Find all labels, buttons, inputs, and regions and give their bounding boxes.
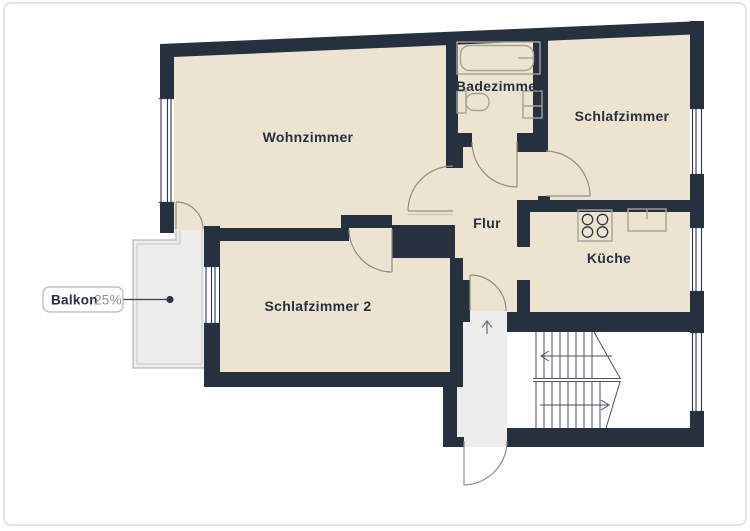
- wall-bad-south-w: [446, 133, 472, 147]
- wall-stair-west: [443, 387, 457, 447]
- room-label-badezimmer: Badezimmer: [456, 78, 543, 94]
- wall-kueche-west-upper: [517, 212, 530, 247]
- wall-sz2-top: [204, 228, 349, 241]
- room-label-flur: Flur: [473, 215, 501, 231]
- window-schlafzimmer-east: [690, 108, 704, 175]
- callout-title: Balkon: [51, 293, 98, 308]
- room-label-schlafzimmer2: Schlafzimmer 2: [265, 298, 372, 314]
- stair-landing: [457, 311, 507, 447]
- wall-bottom: [507, 428, 704, 447]
- wall-bottom-west-bit: [455, 437, 464, 447]
- window-kueche-east: [690, 227, 704, 292]
- callout-dot: [166, 296, 173, 303]
- wall-sz2-bottom: [204, 372, 463, 387]
- callout-value: 25%: [94, 293, 122, 308]
- room-label-kueche: Küche: [587, 250, 631, 266]
- room-label-wohnzimmer: Wohnzimmer: [263, 129, 354, 145]
- floorplan-card: Wohnzimmer Badezimmer Schlafzimmer Flur …: [0, 0, 750, 531]
- window-wohnzimmer-west: [159, 98, 174, 203]
- wall-stairwell-north: [507, 312, 692, 332]
- wall-center-block: [392, 225, 455, 258]
- room-label-schlafzimmer: Schlafzimmer: [575, 108, 670, 124]
- window-schlafzimmer2-balcony: [204, 266, 219, 324]
- wall-wz-bottom: [341, 215, 392, 228]
- window-stairwell-east: [690, 332, 704, 412]
- floorplan-svg: Wohnzimmer Badezimmer Schlafzimmer Flur …: [0, 0, 750, 531]
- balcony: [133, 222, 206, 368]
- wall-entry-jamb: [457, 280, 470, 322]
